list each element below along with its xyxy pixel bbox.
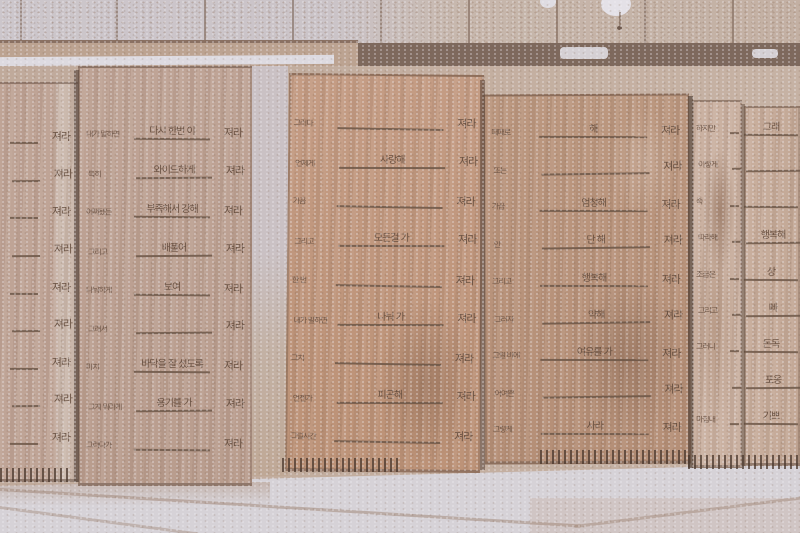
handwritten-answer: 다시 한번 이 bbox=[149, 127, 194, 138]
poem-row: 따라해 bbox=[698, 223, 741, 243]
handwritten-prompt: 어쩌됐든 bbox=[86, 208, 130, 217]
poem-row: 언젠가피곤해져라 bbox=[293, 384, 475, 404]
poem-row: 져라 bbox=[2, 124, 70, 144]
handwritten-prompt: 특히 bbox=[88, 170, 132, 179]
blank-line bbox=[134, 431, 210, 452]
handwritten-prompt: 그리고 bbox=[88, 248, 132, 257]
board-gap bbox=[480, 80, 485, 470]
blank-line bbox=[730, 114, 739, 134]
handwritten-answer: 엄청해 bbox=[581, 199, 606, 210]
poem-row: 한 번져라 bbox=[292, 265, 474, 288]
blank-line bbox=[730, 187, 739, 207]
handwritten-prompt: 죽 bbox=[696, 198, 726, 207]
suffix-word: 져라 bbox=[216, 162, 244, 178]
blank-line: 사랑해 bbox=[339, 149, 445, 169]
poem-rows: 때때로해져라또는져라가끔엄청해져라안단 해져라그리고행복해져라그러자약해져라그럴… bbox=[483, 95, 691, 461]
blank-line: 해 bbox=[539, 118, 647, 138]
handwritten-prompt: 가끔 bbox=[293, 198, 333, 207]
poem-row: 져라 bbox=[2, 350, 70, 370]
suffix-word: 져라 bbox=[654, 232, 682, 248]
suffix-word: 져라 bbox=[216, 318, 244, 334]
blank-line bbox=[334, 422, 440, 444]
handwritten-prompt: 그게 뭐라게 bbox=[88, 404, 132, 413]
suffix-word: 져라 bbox=[653, 158, 681, 174]
poem-row: 그러다가져라 bbox=[86, 430, 242, 451]
handwritten-prompt: 그리고 bbox=[492, 278, 536, 287]
handwritten-prompt: 따라해 bbox=[698, 234, 728, 243]
blank-line: 약해 bbox=[542, 303, 650, 325]
handwritten-prompt: 때때로 bbox=[491, 129, 535, 138]
blank-line bbox=[10, 274, 38, 294]
suffix-word: 져라 bbox=[42, 429, 70, 445]
poem-row: 그치져라 bbox=[291, 343, 473, 366]
poem-row: 상 bbox=[744, 260, 798, 280]
handwritten-answer: 여유를 가 bbox=[577, 348, 612, 359]
blank-line bbox=[732, 223, 741, 243]
message-board-left: 내가 말하면다시 한번 이져라특히와이드하게져라어쩌됐든부족해서 강해져라그리고… bbox=[78, 66, 252, 486]
handwritten-answer: 포옹 bbox=[765, 376, 782, 387]
poem-row: 기쁘 bbox=[744, 405, 798, 425]
blank-line: 행복해 bbox=[540, 266, 648, 286]
poem-row: 그러니 bbox=[696, 332, 739, 352]
blank-line: 상 bbox=[744, 260, 798, 280]
suffix-word: 져라 bbox=[214, 435, 242, 451]
blank-line bbox=[335, 344, 441, 366]
poem-row: 져라 bbox=[2, 425, 70, 445]
handwritten-prompt: 그러니 bbox=[696, 343, 726, 352]
blank-line: 포옹 bbox=[746, 369, 800, 389]
poem-row: 져라 bbox=[2, 274, 70, 294]
blank-line bbox=[730, 260, 739, 280]
suffix-word: 져라 bbox=[449, 153, 477, 169]
blank-line bbox=[337, 187, 443, 209]
suffix-word: 져라 bbox=[448, 310, 476, 326]
blank-line: 배풀어 bbox=[136, 236, 212, 257]
poem-row: 어여쁜져라 bbox=[494, 377, 682, 400]
handwritten-prompt: 그치 bbox=[291, 354, 331, 363]
suffix-word: 져라 bbox=[654, 381, 682, 397]
handwritten-answer: 피곤해 bbox=[377, 391, 402, 402]
suffix-word: 져라 bbox=[651, 122, 679, 138]
suffix-word: 져라 bbox=[446, 272, 474, 288]
handwritten-prompt: 언제게 bbox=[295, 160, 335, 169]
poem-row: 때때로해져라 bbox=[491, 118, 679, 138]
blank-line bbox=[10, 124, 38, 144]
poem-row: 그럴시간져라 bbox=[290, 421, 472, 444]
handwritten-answer: 배풀어 bbox=[162, 243, 187, 254]
blank-line bbox=[746, 152, 800, 172]
poem-row: 그리고모든걸 가져라 bbox=[294, 227, 476, 247]
poem-row: 마치바닥을 잘 섰도록져라 bbox=[86, 353, 242, 374]
suffix-word: 져라 bbox=[42, 203, 70, 219]
handwritten-answer: 모든걸 가 bbox=[374, 234, 409, 245]
handwritten-prompt: 하지만 bbox=[696, 125, 726, 134]
poem-row: 특히와이드하게져라 bbox=[88, 158, 244, 179]
tile-light-patch bbox=[752, 49, 778, 58]
handwritten-prompt: 언젠가 bbox=[293, 395, 333, 404]
suffix-word: 져라 bbox=[447, 193, 475, 209]
handwritten-answer: 기쁘 bbox=[763, 412, 779, 423]
poem-row bbox=[698, 368, 741, 388]
board-bottom-shadow bbox=[540, 450, 690, 464]
blank-line: 나눠 가 bbox=[338, 306, 444, 326]
poem-row: 빠 bbox=[746, 296, 800, 316]
blank-line bbox=[541, 154, 649, 176]
poem-row: 조금은 bbox=[696, 259, 739, 279]
handwritten-answer: 약해 bbox=[588, 310, 605, 321]
handwritten-prompt: 마치 bbox=[86, 364, 130, 373]
poem-row: 가끔엄청해져라 bbox=[492, 192, 680, 212]
blank-line bbox=[542, 377, 650, 399]
blank-line bbox=[12, 237, 40, 257]
poem-row: 그렇게사라져라 bbox=[493, 415, 681, 435]
suffix-word: 져라 bbox=[216, 240, 244, 256]
board-gap bbox=[741, 104, 745, 466]
poem-rows: 하지만이렇게죽따라해조금은그리고그러니마침내 bbox=[692, 102, 742, 465]
handwritten-answer: 보여 bbox=[164, 282, 180, 293]
blank-line bbox=[10, 199, 38, 219]
handwritten-answer: 행복해 bbox=[582, 273, 607, 284]
suffix-word: 져라 bbox=[44, 391, 72, 407]
blank-line: 피곤해 bbox=[337, 384, 443, 404]
handwritten-prompt: 그래서 bbox=[88, 326, 132, 335]
handwritten-prompt: 가끔 bbox=[492, 203, 536, 212]
handwritten-answer: 와이드하게 bbox=[153, 166, 194, 177]
suffix-word: 져라 bbox=[445, 350, 473, 366]
board-bottom-shadow bbox=[282, 458, 402, 472]
poem-row: 그러자약해져라 bbox=[494, 302, 682, 325]
blank-line bbox=[10, 425, 38, 445]
poem-row: 그리고 bbox=[698, 296, 741, 316]
suffix-word: 져라 bbox=[444, 428, 472, 444]
handwritten-prompt: 내가 말하면 bbox=[294, 317, 334, 326]
poem-row bbox=[746, 152, 800, 172]
suffix-word: 져라 bbox=[44, 241, 72, 257]
board-gap bbox=[74, 70, 79, 482]
blank-line: 부족해서 강해 bbox=[134, 198, 210, 219]
wall-gap-between-boards bbox=[252, 66, 288, 476]
board-bottom-shadow bbox=[0, 468, 70, 482]
poem-row: 져라 bbox=[2, 199, 70, 219]
poem-rows: 그러다져라언제게사랑해져라가끔져라그리고모든걸 가져라한 번져라내가 말하면나눠… bbox=[285, 75, 484, 470]
poem-row: 하지만 bbox=[696, 114, 739, 134]
blank-line bbox=[136, 314, 212, 335]
blank-line: 기쁘 bbox=[744, 405, 798, 425]
message-board-center-right: 때때로해져라또는져라가끔엄청해져라안단 해져라그리고행복해져라그러자약해져라그럴… bbox=[483, 93, 691, 464]
message-board-right: 하지만이렇게죽따라해조금은그리고그러니마침내 bbox=[692, 100, 742, 468]
poem-rows: 내가 말하면다시 한번 이져라특히와이드하게져라어쩌됐든부족해서 강해져라그리고… bbox=[78, 68, 252, 483]
handwritten-prompt: 조금은 bbox=[696, 271, 726, 280]
blank-line: 엄청해 bbox=[540, 192, 648, 212]
suffix-word: 져라 bbox=[448, 231, 476, 247]
blank-line bbox=[10, 350, 38, 370]
handwritten-answer: 돈독 bbox=[763, 340, 779, 351]
blank-line bbox=[337, 109, 443, 131]
poem-row: 내가 말하면다시 한번 이져라 bbox=[86, 119, 242, 140]
handwritten-prompt: 그러다가 bbox=[86, 442, 130, 451]
message-board-far-left: 져라져라져라져라져라져라져라져라져라 bbox=[0, 82, 78, 482]
blank-line: 와이드하게 bbox=[136, 158, 212, 179]
blank-line bbox=[12, 162, 40, 182]
handwritten-answer: 나눠 가 bbox=[377, 313, 404, 324]
blank-line: 단 해 bbox=[542, 229, 650, 251]
blank-line bbox=[336, 266, 442, 288]
handwritten-prompt: 그리고 bbox=[698, 307, 728, 316]
blank-line: 다시 한번 이 bbox=[134, 120, 210, 141]
poem-row bbox=[744, 188, 798, 208]
handwritten-answer: 사라 bbox=[587, 422, 603, 433]
suffix-word: 져라 bbox=[42, 279, 70, 295]
suffix-word: 져라 bbox=[44, 165, 72, 181]
handwritten-prompt: 그리고 bbox=[294, 238, 334, 247]
poem-row: 져라 bbox=[4, 387, 72, 408]
handwritten-answer: 빠 bbox=[769, 304, 777, 315]
poem-row: 죽 bbox=[696, 187, 739, 207]
poem-row: 돈독 bbox=[744, 333, 798, 353]
poem-row: 마침내 bbox=[696, 405, 739, 425]
handwritten-prompt: 그럴 바에 bbox=[492, 352, 536, 361]
poem-row: 그리고배풀어져라 bbox=[88, 236, 244, 257]
handwritten-prompt: 내가 말하면 bbox=[86, 131, 130, 140]
blank-line: 여유를 가 bbox=[540, 341, 648, 361]
suffix-word: 져라 bbox=[654, 306, 682, 322]
poem-row: 내가 말하면나눠 가져라 bbox=[294, 305, 476, 325]
blank-line bbox=[12, 312, 40, 332]
handwritten-answer: 바닥을 잘 섰도록 bbox=[141, 360, 203, 371]
blank-line: 그래 bbox=[744, 116, 798, 136]
suffix-word: 져라 bbox=[42, 354, 70, 370]
blank-line: 행복해 bbox=[746, 224, 800, 244]
poem-rows: 져라져라져라져라져라져라져라져라져라 bbox=[0, 84, 78, 479]
handwritten-prompt: 마침내 bbox=[696, 416, 726, 425]
poem-row: 그리고행복해져라 bbox=[492, 266, 680, 286]
handwritten-prompt: 그렇게 bbox=[493, 426, 537, 435]
handwritten-answer: 해 bbox=[589, 125, 597, 136]
blank-line: 돈독 bbox=[744, 333, 798, 353]
poem-row: 가끔져라 bbox=[293, 187, 475, 210]
blank-line bbox=[732, 150, 741, 170]
blank-line bbox=[732, 368, 741, 388]
blank-line: 사라 bbox=[541, 415, 649, 435]
suffix-word: 져라 bbox=[653, 419, 681, 435]
handwritten-answer: 그래 bbox=[763, 123, 779, 134]
blank-line: 모든걸 가 bbox=[338, 227, 444, 247]
handwritten-prompt: 이렇게 bbox=[698, 162, 728, 171]
suffix-word: 져라 bbox=[447, 115, 475, 131]
poem-row: 그게 뭐라게용기를 가져라 bbox=[88, 391, 244, 412]
blank-line: 바닥을 잘 섰도록 bbox=[134, 353, 210, 374]
suffix-word: 져라 bbox=[214, 124, 242, 140]
blank-line bbox=[744, 188, 798, 208]
wall-fixture-dot bbox=[617, 26, 622, 30]
blank-line: 보여 bbox=[134, 275, 210, 296]
poem-row: 그러다져라 bbox=[293, 108, 475, 131]
board-gap bbox=[688, 96, 693, 468]
blank-line: 빠 bbox=[746, 296, 800, 316]
suffix-word: 져라 bbox=[652, 196, 680, 212]
handwritten-prompt: 그럴시간 bbox=[290, 433, 330, 442]
handwritten-prompt: 그러자 bbox=[494, 316, 538, 325]
suffix-word: 져라 bbox=[652, 345, 680, 361]
floor-tile-joint bbox=[0, 488, 581, 528]
blank-line: 용기를 가 bbox=[136, 392, 212, 413]
blank-line bbox=[732, 296, 741, 316]
suffix-word: 져라 bbox=[44, 316, 72, 332]
blank-line bbox=[730, 405, 739, 425]
poem-row: 져라 bbox=[4, 161, 72, 182]
poem-row: 그래서져라 bbox=[88, 314, 244, 335]
poem-row: 행복해 bbox=[746, 224, 800, 244]
poem-row: 나눠하게보여져라 bbox=[86, 275, 242, 296]
handwritten-prompt: 그러다 bbox=[293, 120, 333, 129]
poem-row: 이렇게 bbox=[698, 150, 741, 170]
wall-fixture-stem bbox=[619, 12, 621, 26]
poem-row: 져라 bbox=[4, 312, 72, 333]
poem-row: 또는져라 bbox=[493, 154, 681, 177]
blank-line bbox=[12, 387, 40, 407]
poem-row: 그래 bbox=[744, 116, 798, 136]
handwritten-answer: 행복해 bbox=[761, 231, 786, 242]
suffix-word: 져라 bbox=[216, 395, 244, 411]
suffix-word: 져라 bbox=[214, 280, 242, 296]
poem-row: 안단 해져라 bbox=[494, 228, 682, 251]
handwritten-prompt: 한 번 bbox=[292, 276, 332, 285]
poem-row: 그럴 바에여유를 가져라 bbox=[492, 341, 680, 361]
poem-rows: 그래행복해상빠돈독포옹기쁘 bbox=[744, 108, 800, 463]
handwritten-answer: 단 해 bbox=[586, 236, 605, 247]
handwritten-prompt: 또는 bbox=[493, 167, 537, 176]
poem-row: 포옹 bbox=[746, 369, 800, 389]
handwritten-prompt: 나눠하게 bbox=[86, 286, 130, 295]
message-board-far-right: 그래행복해상빠돈독포옹기쁘 bbox=[744, 106, 800, 466]
suffix-word: 져라 bbox=[42, 128, 70, 144]
blank-line bbox=[730, 332, 739, 352]
suffix-word: 져라 bbox=[214, 358, 242, 374]
photo-scene: 져라져라져라져라져라져라져라져라져라 내가 말하면다시 한번 이져라특히와이드하… bbox=[0, 0, 800, 533]
handwritten-answer: 부족해서 강해 bbox=[146, 205, 197, 216]
message-board-center: 그러다져라언제게사랑해져라가끔져라그리고모든걸 가져라한 번져라내가 말하면나눠… bbox=[285, 73, 484, 473]
handwritten-answer: 상 bbox=[767, 267, 775, 278]
poem-row: 언제게사랑해져라 bbox=[295, 149, 477, 169]
poem-row: 어쩌됐든부족해서 강해져라 bbox=[86, 197, 242, 218]
tile-light-patch bbox=[560, 47, 608, 59]
handwritten-answer: 용기를 가 bbox=[156, 399, 191, 410]
poem-row: 져라 bbox=[4, 237, 72, 258]
board-bottom-shadow bbox=[688, 455, 800, 469]
suffix-word: 져라 bbox=[447, 388, 475, 404]
suffix-word: 져라 bbox=[214, 202, 242, 218]
suffix-word: 져라 bbox=[652, 271, 680, 287]
handwritten-prompt: 안 bbox=[494, 241, 538, 250]
handwritten-prompt: 어여쁜 bbox=[495, 390, 539, 399]
handwritten-answer: 사랑해 bbox=[380, 156, 405, 167]
floor-tile-joint bbox=[0, 506, 198, 533]
